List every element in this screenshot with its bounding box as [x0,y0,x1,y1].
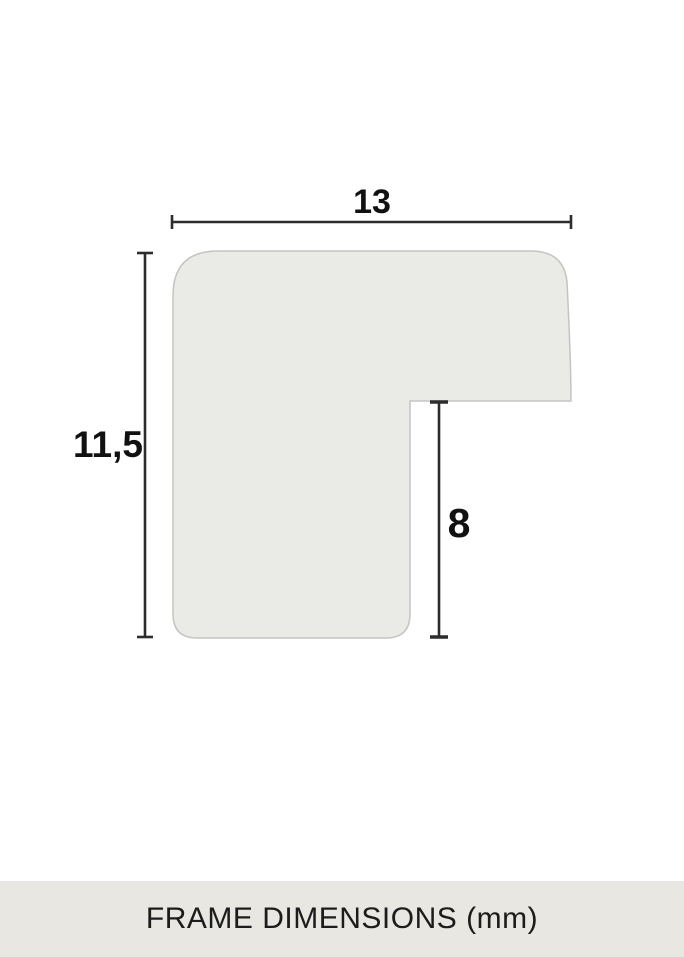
height-dimension-label: 11,5 [73,424,143,465]
rabbet-dimension: 8 [430,402,470,637]
rabbet-dimension-label: 8 [448,500,471,546]
frame-dimensions-page: 13 11,5 8 FRAME DIMENSIONS (mm) [0,0,684,957]
footer-caption: FRAME DIMENSIONS (mm) [146,902,538,936]
frame-profile-diagram: 13 11,5 8 [0,0,684,881]
frame-profile-shape [173,251,571,638]
footer-caption-bar: FRAME DIMENSIONS (mm) [0,881,684,957]
width-dimension-label: 13 [353,183,391,221]
width-dimension: 13 [172,183,571,229]
height-dimension: 11,5 [73,253,153,637]
